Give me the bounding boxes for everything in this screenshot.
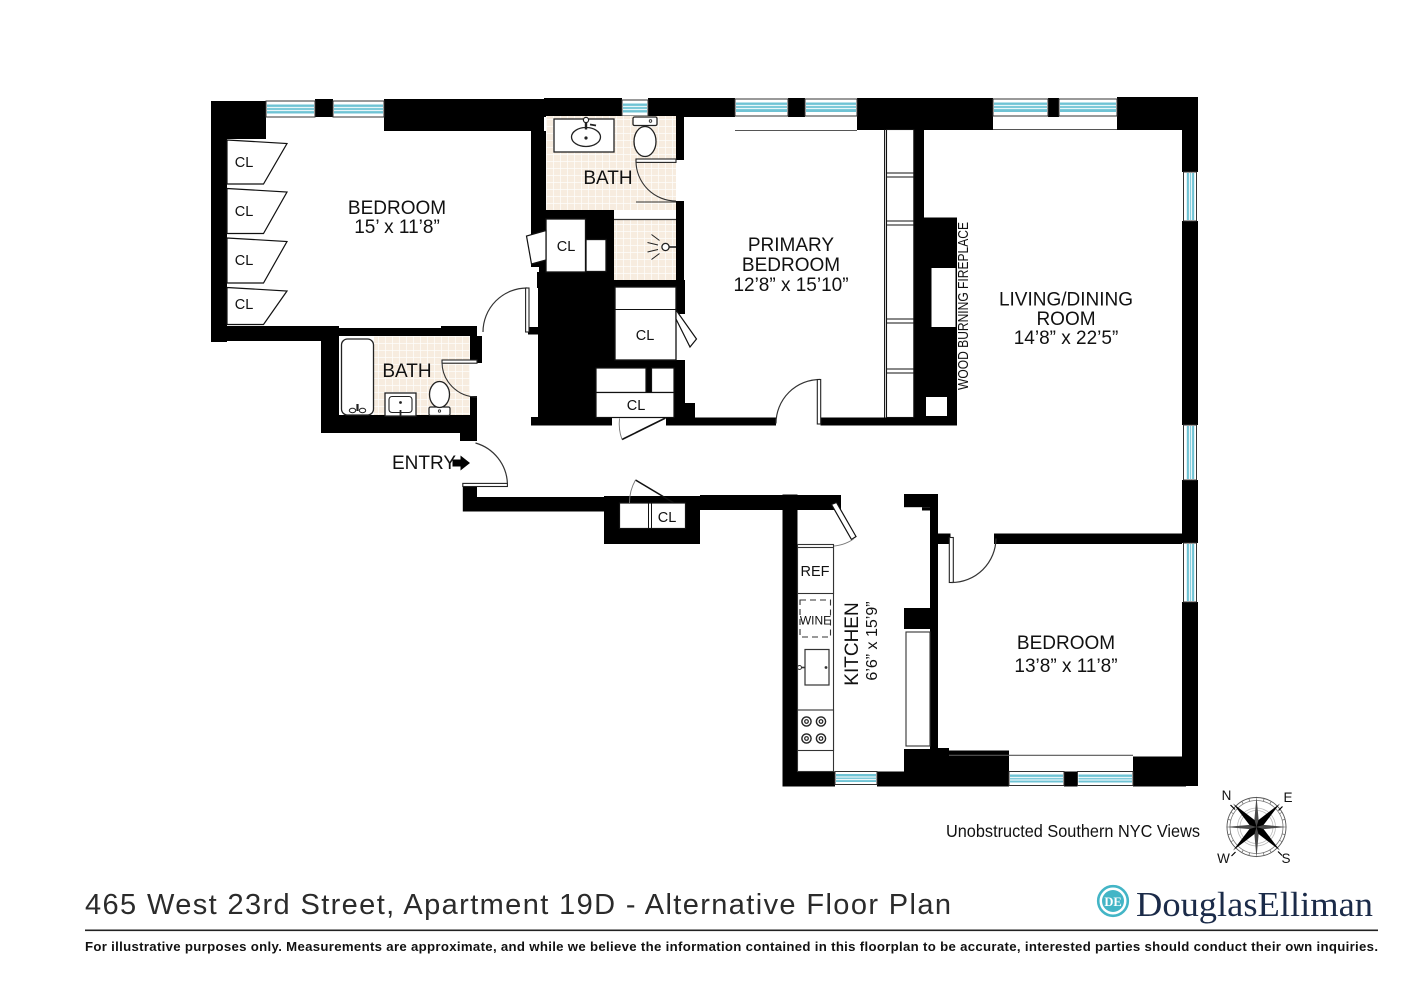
svg-text:DouglasElliman: DouglasElliman: [1136, 885, 1373, 924]
svg-text:N: N: [1222, 788, 1232, 803]
svg-text:CL: CL: [235, 155, 254, 171]
svg-text:15’ x 11’8”: 15’ x 11’8”: [354, 217, 440, 238]
svg-text:BATH: BATH: [382, 361, 431, 382]
svg-text:CL: CL: [235, 204, 254, 220]
svg-text:CL: CL: [658, 510, 677, 526]
svg-text:CL: CL: [235, 253, 254, 269]
svg-text:BEDROOM: BEDROOM: [1017, 633, 1115, 654]
svg-text:LIVING/DINING: LIVING/DINING: [999, 290, 1133, 311]
svg-text:13’8” x 11’8”: 13’8” x 11’8”: [1014, 656, 1117, 677]
svg-text:BEDROOM: BEDROOM: [742, 255, 840, 276]
svg-text:BEDROOM: BEDROOM: [348, 198, 446, 219]
svg-text:465 West 23rd Street, Apartmen: 465 West 23rd Street, Apartment 19D - Al…: [85, 889, 951, 921]
svg-text:ENTRY: ENTRY: [392, 453, 456, 474]
svg-text:ROOM: ROOM: [1036, 309, 1095, 330]
svg-text:For illustrative purposes only: For illustrative purposes only. Measurem…: [85, 939, 1378, 954]
svg-text:Unobstructed Southern NYC View: Unobstructed Southern NYC Views: [946, 821, 1200, 841]
svg-text:W: W: [1217, 851, 1230, 866]
svg-text:WOOD BURNING FIREPLACE: WOOD BURNING FIREPLACE: [956, 222, 972, 390]
svg-text:BATH: BATH: [583, 168, 632, 189]
svg-text:CL: CL: [627, 398, 646, 414]
svg-text:E: E: [1283, 790, 1292, 805]
svg-text:6’6” x 15’9”: 6’6” x 15’9”: [864, 601, 881, 680]
svg-text:14’8” x 22’5”: 14’8” x 22’5”: [1014, 328, 1119, 349]
svg-text:CL: CL: [235, 297, 254, 313]
svg-text:REF: REF: [801, 564, 830, 580]
svg-text:CL: CL: [557, 239, 576, 255]
svg-text:DE: DE: [1104, 895, 1121, 909]
svg-text:PRIMARY: PRIMARY: [748, 235, 835, 256]
svg-text:KITCHEN: KITCHEN: [842, 602, 863, 685]
svg-text:CL: CL: [636, 328, 655, 344]
svg-text:WINE: WINE: [800, 614, 831, 628]
svg-text:12’8” x 15’10”: 12’8” x 15’10”: [733, 275, 848, 296]
svg-text:S: S: [1281, 851, 1290, 866]
